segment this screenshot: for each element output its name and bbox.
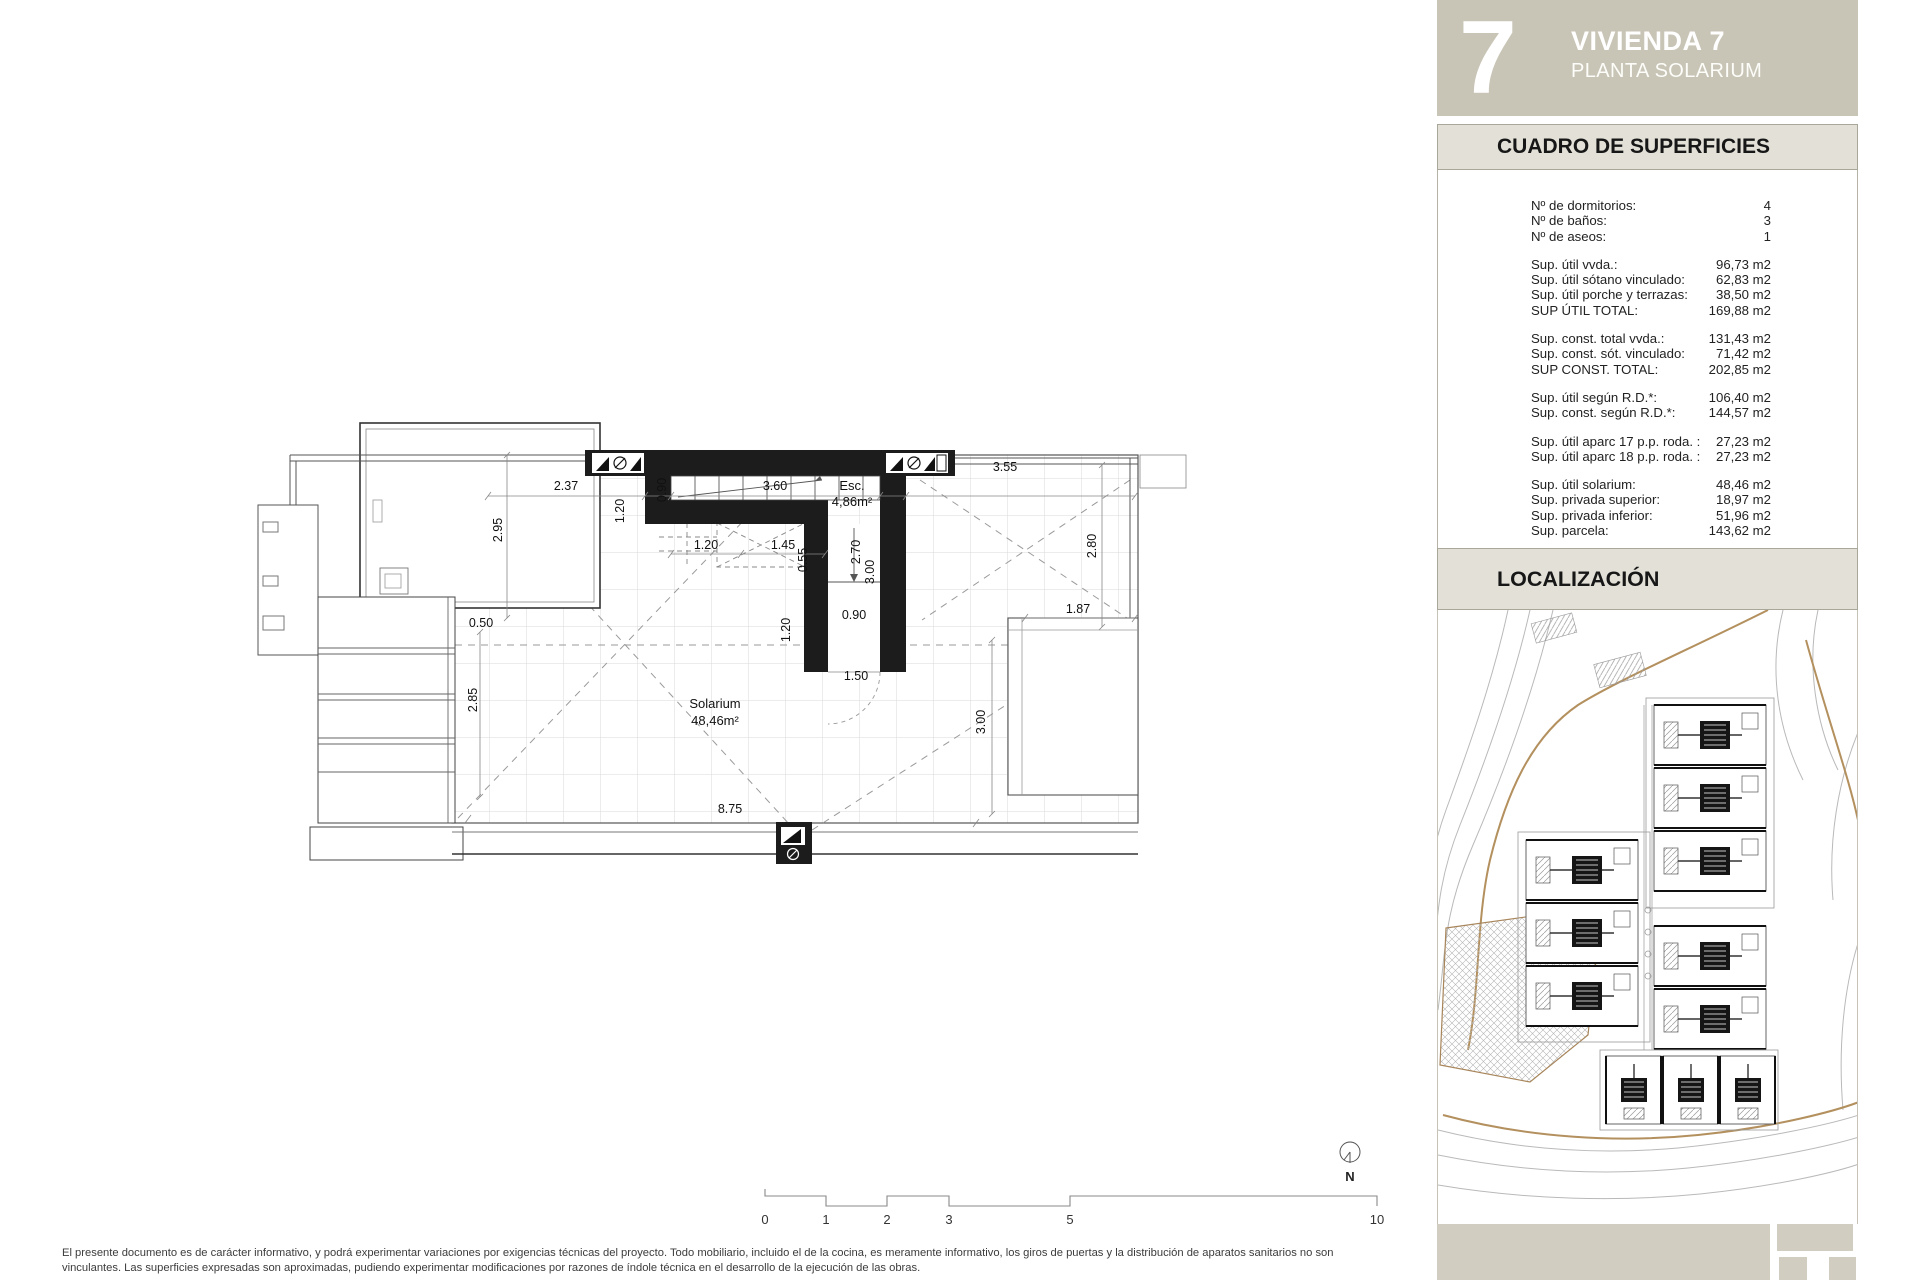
surface-row-label: Sup. útil vvda.:	[1531, 257, 1618, 272]
footer-logo-block	[1829, 1257, 1856, 1280]
location-section-title: LOCALIZACIÓN	[1437, 548, 1858, 610]
sidebar-footer	[1437, 1224, 1858, 1280]
surface-row: Sup. parcela:143,62 m2	[1438, 523, 1857, 538]
surface-row-value: 71,42 m2	[1716, 346, 1771, 361]
dim-0-55: 0.55	[796, 548, 810, 572]
surface-row-label: Sup. útil solarium:	[1531, 477, 1636, 492]
surface-row-label: Sup. const. total vvda.:	[1531, 331, 1664, 346]
unit-number: 7	[1437, 0, 1545, 116]
esc-room-label: Esc.	[839, 478, 864, 493]
north-arrow-icon	[1340, 1142, 1360, 1163]
dim-2-95: 2.95	[491, 518, 505, 542]
surface-row-label: SUP ÚTIL TOTAL:	[1531, 303, 1638, 318]
surface-row-value: 18,97 m2	[1716, 492, 1771, 507]
surface-row: Sup. útil solarium:48,46 m2	[1438, 477, 1857, 492]
dim-1-45: 1.45	[771, 538, 795, 552]
surfaces-group: Sup. útil según R.D.*:106,40 m2Sup. cons…	[1438, 390, 1857, 421]
dim-2-80: 2.80	[1085, 534, 1099, 558]
surface-row-value: 169,88 m2	[1709, 303, 1771, 318]
neighbor-roof-block	[1008, 618, 1138, 795]
surface-row-value: 3	[1764, 213, 1771, 228]
surface-row: Sup. privada inferior:51,96 m2	[1438, 508, 1857, 523]
map-cluster-highlight	[1654, 926, 1766, 1049]
scalebar-and-north: 0 1 2 3 5 10 N	[740, 1130, 1400, 1240]
surface-row-label: Sup. privada inferior:	[1531, 508, 1653, 523]
surfaces-group: Sup. útil aparc 17 p.p. roda. :27,23 m2S…	[1438, 434, 1857, 465]
surface-row-value: 106,40 m2	[1709, 390, 1771, 405]
surface-row-label: Nº de baños:	[1531, 213, 1607, 228]
dim-2-85: 2.85	[466, 688, 480, 712]
surface-row-value: 27,23 m2	[1716, 449, 1771, 464]
left-strip	[258, 505, 318, 655]
esc-room-area: 4,86m²	[832, 494, 873, 509]
surfaces-group: Sup. útil vvda.:96,73 m2Sup. útil sótano…	[1438, 257, 1857, 318]
footer-logo-block	[1437, 1224, 1770, 1280]
map-cluster-bottom	[1600, 1050, 1778, 1130]
dim-3-60: 3.60	[763, 479, 787, 493]
upper-left-room	[360, 423, 600, 608]
dim-3-00-a: 3.00	[863, 560, 877, 584]
surface-row-label: Sup. parcela:	[1531, 523, 1609, 538]
surface-row: Sup. útil según R.D.*:106,40 m2	[1438, 390, 1857, 405]
surface-row-label: Sup. útil aparc 17 p.p. roda. :	[1531, 434, 1700, 449]
scale-bar	[765, 1189, 1377, 1206]
dim-1-50: 1.50	[844, 669, 868, 683]
svg-text:3: 3	[945, 1212, 952, 1227]
section-marker-left	[592, 453, 644, 473]
surface-row: Nº de aseos:1	[1438, 229, 1857, 244]
solarium-label: Solarium	[689, 696, 740, 711]
surface-row-label: Sup. privada superior:	[1531, 492, 1660, 507]
footer-logo-block	[1777, 1224, 1853, 1251]
map-hatch-patch-2	[1594, 652, 1647, 688]
dim-2-70: 2.70	[849, 540, 863, 564]
surface-row: Sup. privada superior:18,97 m2	[1438, 492, 1857, 507]
surface-row-label: Sup. útil porche y terrazas:	[1531, 287, 1688, 302]
dim-0-50: 0.50	[469, 616, 493, 630]
disclaimer-line-2: vinculantes. Las superficies expresadas …	[62, 1261, 1422, 1276]
site-plan-drawing	[1438, 610, 1858, 1224]
surface-row: Sup. útil sótano vinculado:62,83 m2	[1438, 272, 1857, 287]
dim-0-90-h: 0.90	[842, 608, 866, 622]
dim-1-20-h: 1.20	[694, 538, 718, 552]
surfaces-table: Nº de dormitorios:4Nº de baños:3Nº de as…	[1437, 170, 1858, 548]
surface-row: SUP ÚTIL TOTAL:169,88 m2	[1438, 303, 1857, 318]
svg-text:0: 0	[761, 1212, 768, 1227]
surface-row-value: 143,62 m2	[1709, 523, 1771, 538]
dim-8-75: 8.75	[718, 802, 742, 816]
dim-1-87: 1.87	[1066, 602, 1090, 616]
dim-3-00-b: 3.00	[974, 710, 988, 734]
section-marker-right	[886, 453, 948, 473]
surface-row: Sup. const. sót. vinculado:71,42 m2	[1438, 346, 1857, 361]
surfaces-group: Sup. const. total vvda.:131,43 m2Sup. co…	[1438, 331, 1857, 377]
surface-row-label: Sup. const. sót. vinculado:	[1531, 346, 1685, 361]
surface-row-value: 27,23 m2	[1716, 434, 1771, 449]
surface-row-label: SUP CONST. TOTAL:	[1531, 362, 1658, 377]
unit-title: VIVIENDA 7	[1571, 26, 1762, 57]
surfaces-group: Sup. útil solarium:48,46 m2Sup. privada …	[1438, 477, 1857, 538]
disclaimer-line-1: El presente documento es de carácter inf…	[62, 1246, 1422, 1261]
surface-row-label: Sup. útil aparc 18 p.p. roda. :	[1531, 449, 1700, 464]
svg-text:5: 5	[1066, 1212, 1073, 1227]
surface-row-value: 202,85 m2	[1709, 362, 1771, 377]
map-hatch-patch-1	[1531, 613, 1577, 643]
surface-row-label: Nº de dormitorios:	[1531, 198, 1636, 213]
surface-row-label: Sup. const. según R.D.*:	[1531, 405, 1675, 420]
surface-row-label: Sup. útil sótano vinculado:	[1531, 272, 1685, 287]
dim-3-55: 3.55	[993, 460, 1017, 474]
north-label: N	[1345, 1169, 1354, 1184]
info-sidebar: 7 VIVIENDA 7 PLANTA SOLARIUM CUADRO DE S…	[1437, 0, 1858, 1280]
surface-row: Sup. útil vvda.:96,73 m2	[1438, 257, 1857, 272]
location-map	[1437, 610, 1858, 1224]
surface-row-value: 4	[1764, 198, 1771, 213]
surface-row: Nº de dormitorios:4	[1438, 198, 1857, 213]
surfaces-section-title: CUADRO DE SUPERFICIES	[1437, 124, 1858, 170]
map-cluster-upper	[1646, 698, 1774, 908]
surface-row: Sup. const. total vvda.:131,43 m2	[1438, 331, 1857, 346]
solarium-area: 48,46m²	[691, 713, 739, 728]
surface-row: SUP CONST. TOTAL:202,85 m2	[1438, 362, 1857, 377]
surfaces-group: Nº de dormitorios:4Nº de baños:3Nº de as…	[1438, 198, 1857, 244]
surface-row-value: 62,83 m2	[1716, 272, 1771, 287]
svg-text:10: 10	[1370, 1212, 1384, 1227]
dim-0-90-v: 0.90	[655, 478, 669, 502]
surface-row-value: 38,50 m2	[1716, 287, 1771, 302]
dim-1-20-v: 1.20	[613, 499, 627, 523]
surface-row-label: Sup. útil según R.D.*:	[1531, 390, 1657, 405]
surface-row: Sup. útil porche y terrazas:38,50 m2	[1438, 287, 1857, 302]
svg-text:2: 2	[883, 1212, 890, 1227]
surface-row: Sup. útil aparc 18 p.p. roda. :27,23 m2	[1438, 449, 1857, 464]
left-planter	[310, 597, 463, 860]
surface-row-value: 144,57 m2	[1709, 405, 1771, 420]
dim-2-37: 2.37	[554, 479, 578, 493]
svg-text:1: 1	[822, 1212, 829, 1227]
surface-row: Sup. útil aparc 17 p.p. roda. :27,23 m2	[1438, 434, 1857, 449]
surface-row-value: 48,46 m2	[1716, 477, 1771, 492]
surface-row-value: 1	[1764, 229, 1771, 244]
section-marker-bottom	[776, 822, 812, 864]
sidebar-header: 7 VIVIENDA 7 PLANTA SOLARIUM	[1437, 0, 1858, 116]
surface-row-value: 51,96 m2	[1716, 508, 1771, 523]
surface-row-value: 96,73 m2	[1716, 257, 1771, 272]
surface-row: Nº de baños:3	[1438, 213, 1857, 228]
disclaimer-note: El presente documento es de carácter inf…	[62, 1246, 1422, 1275]
plan-subtitle: PLANTA SOLARIUM	[1571, 60, 1762, 83]
surface-row-label: Nº de aseos:	[1531, 229, 1606, 244]
map-cluster-left	[1518, 832, 1650, 1042]
surface-row: Sup. const. según R.D.*:144,57 m2	[1438, 405, 1857, 420]
footer-logo-block	[1779, 1257, 1807, 1280]
floor-plan-drawing: 2.37 3.60 3.55 1.20 1.45 1.87 0.50 0.90 …	[230, 330, 1190, 890]
scale-bar-labels: 0 1 2 3 5 10	[761, 1212, 1384, 1227]
dim-1-20-v2: 1.20	[779, 618, 793, 642]
surface-row-value: 131,43 m2	[1709, 331, 1771, 346]
map-corridor	[1644, 705, 1652, 1050]
